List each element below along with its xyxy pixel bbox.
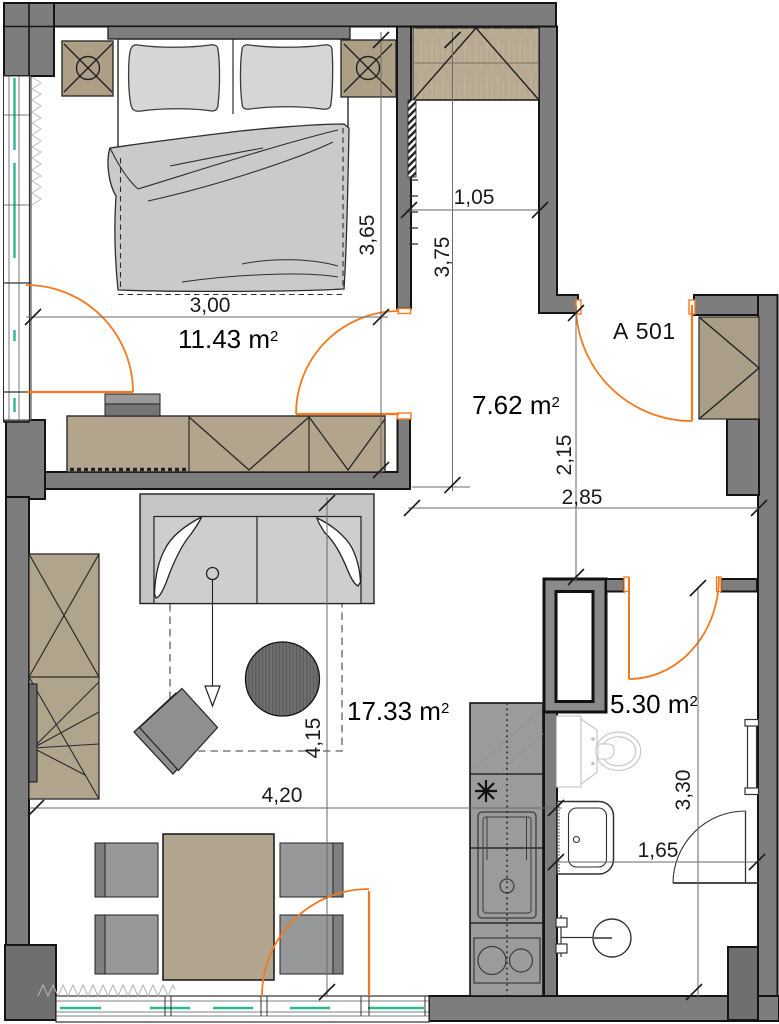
svg-text:4,20: 4,20 <box>262 784 303 807</box>
svg-text:17.33 m2: 17.33 m2 <box>347 696 449 726</box>
svg-text:3,65: 3,65 <box>356 215 379 256</box>
svg-text:A 501: A 501 <box>613 318 676 344</box>
svg-text:3,00: 3,00 <box>190 294 231 317</box>
svg-text:3,30: 3,30 <box>672 770 695 811</box>
svg-text:2,85: 2,85 <box>562 486 603 509</box>
svg-text:7.62 m2: 7.62 m2 <box>472 390 560 420</box>
svg-text:2,15: 2,15 <box>553 435 576 476</box>
svg-text:1,05: 1,05 <box>454 186 495 209</box>
svg-text:4,15: 4,15 <box>302 718 325 759</box>
svg-text:3,75: 3,75 <box>431 237 454 278</box>
svg-text:5.30 m2: 5.30 m2 <box>610 689 698 719</box>
svg-text:11.43 m2: 11.43 m2 <box>178 324 278 354</box>
svg-text:1,65: 1,65 <box>638 839 679 862</box>
